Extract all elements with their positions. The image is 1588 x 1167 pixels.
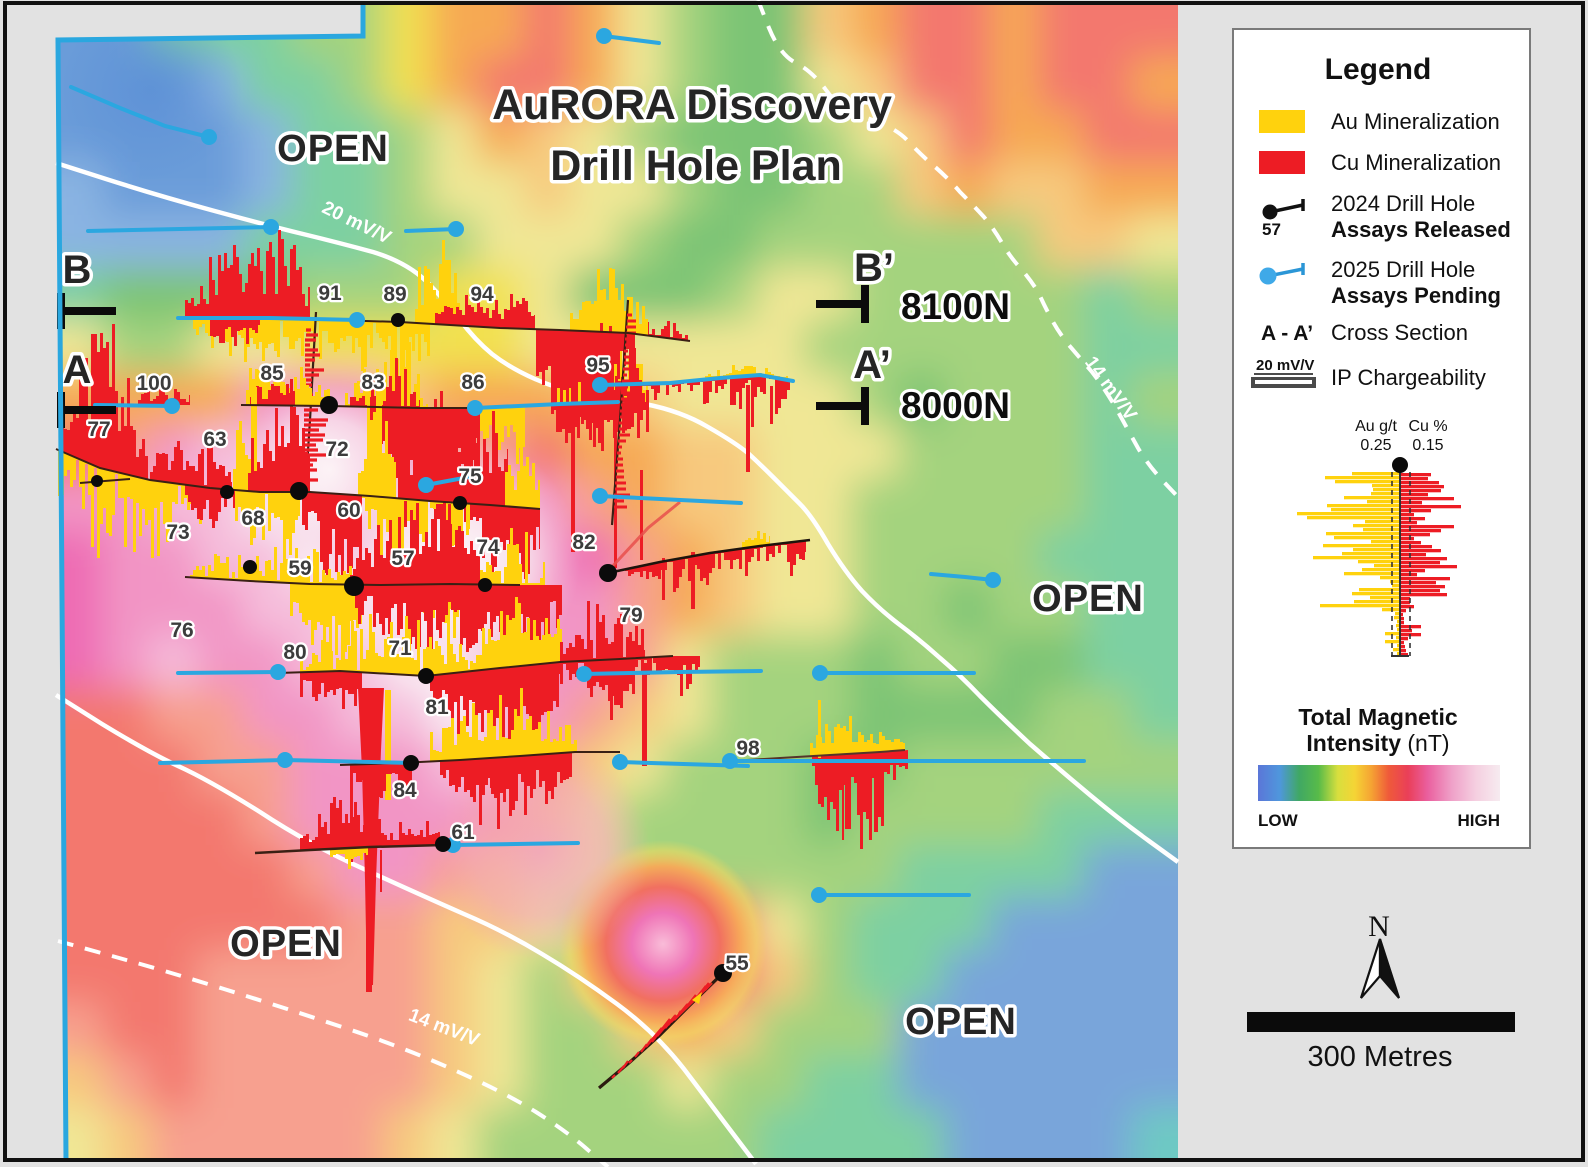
svg-text:94: 94 — [470, 283, 494, 306]
svg-text:98: 98 — [736, 737, 760, 760]
svg-text:N: N — [1368, 910, 1390, 943]
svg-text:71: 71 — [388, 637, 412, 660]
svg-text:55: 55 — [725, 952, 749, 975]
svg-text:8000N: 8000N — [901, 385, 1010, 426]
svg-text:72: 72 — [325, 438, 348, 461]
svg-text:Legend: Legend — [1325, 53, 1432, 86]
svg-text:A - A’: A - A’ — [1261, 322, 1313, 345]
svg-text:84: 84 — [393, 779, 417, 802]
svg-text:8100N: 8100N — [901, 286, 1010, 327]
svg-text:76: 76 — [170, 619, 193, 642]
svg-text:95: 95 — [586, 354, 610, 377]
svg-text:73: 73 — [166, 521, 189, 544]
svg-text:85: 85 — [260, 362, 284, 385]
svg-text:2024 Drill Hole: 2024 Drill Hole — [1331, 191, 1475, 216]
svg-text:Cu Mineralization: Cu Mineralization — [1331, 150, 1501, 175]
svg-text:0.25: 0.25 — [1360, 437, 1391, 454]
svg-text:60: 60 — [337, 499, 360, 522]
svg-text:20 mV/V: 20 mV/V — [1256, 357, 1314, 374]
svg-text:100: 100 — [136, 372, 171, 395]
svg-text:0.15: 0.15 — [1412, 437, 1443, 454]
svg-text:82: 82 — [572, 531, 595, 554]
svg-text:300 Metres: 300 Metres — [1307, 1041, 1452, 1073]
svg-text:Au g/t: Au g/t — [1355, 418, 1397, 435]
svg-text:OPEN: OPEN — [277, 128, 389, 170]
svg-text:86: 86 — [461, 371, 484, 394]
svg-text:LOW: LOW — [1258, 811, 1299, 830]
svg-text:Cu %: Cu % — [1408, 418, 1447, 435]
svg-text:IP Chargeability: IP Chargeability — [1331, 365, 1486, 390]
svg-text:A: A — [63, 348, 92, 392]
svg-text:79: 79 — [619, 604, 642, 627]
svg-text:Assays Pending: Assays Pending — [1331, 283, 1501, 308]
svg-text:AuRORA Discovery: AuRORA Discovery — [492, 81, 892, 129]
svg-text:75: 75 — [458, 465, 482, 488]
svg-text:83: 83 — [361, 371, 384, 394]
svg-text:63: 63 — [203, 428, 226, 451]
svg-text:81: 81 — [425, 696, 449, 719]
svg-text:Intensity (nT): Intensity (nT) — [1306, 730, 1449, 756]
svg-text:A’: A’ — [853, 343, 891, 387]
svg-text:89: 89 — [383, 283, 406, 306]
svg-text:B: B — [63, 248, 92, 292]
svg-text:91: 91 — [318, 282, 342, 305]
svg-text:Total Magnetic: Total Magnetic — [1298, 704, 1458, 730]
svg-text:77: 77 — [87, 418, 110, 441]
svg-text:2025 Drill Hole: 2025 Drill Hole — [1331, 257, 1475, 282]
svg-text:Assays Released: Assays Released — [1331, 217, 1511, 242]
svg-text:Au Mineralization: Au Mineralization — [1331, 109, 1500, 134]
svg-text:HIGH: HIGH — [1458, 811, 1501, 830]
svg-text:59: 59 — [288, 557, 311, 580]
svg-text:68: 68 — [241, 507, 265, 530]
svg-text:OPEN: OPEN — [230, 923, 342, 965]
svg-text:74: 74 — [476, 536, 500, 559]
svg-text:80: 80 — [283, 641, 306, 664]
svg-text:57: 57 — [391, 547, 414, 570]
svg-text:61: 61 — [451, 821, 475, 844]
svg-text:Cross Section: Cross Section — [1331, 320, 1468, 345]
svg-text:Drill Hole Plan: Drill Hole Plan — [550, 142, 842, 190]
svg-text:OPEN: OPEN — [905, 1001, 1017, 1043]
svg-text:OPEN: OPEN — [1032, 578, 1144, 620]
svg-text:B’: B’ — [854, 246, 894, 290]
svg-text:57: 57 — [1262, 220, 1281, 239]
